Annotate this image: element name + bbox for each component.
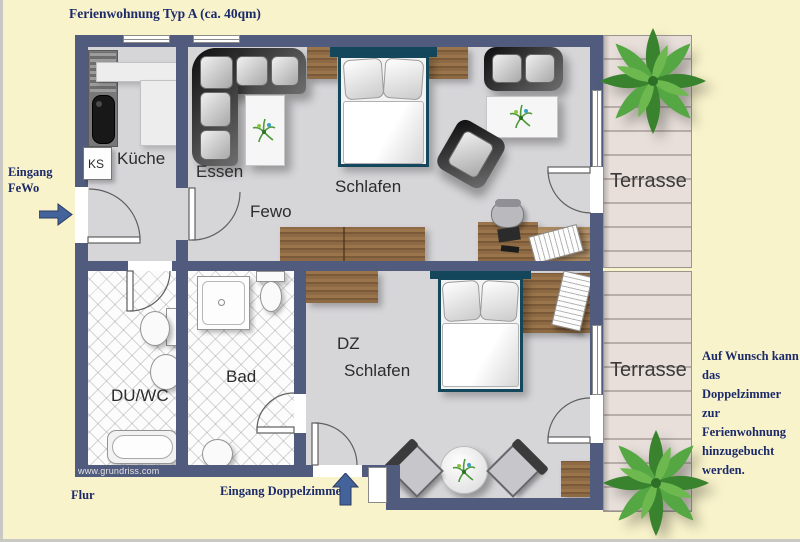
kitchen-sink-icon (92, 95, 115, 144)
note-line: zur Ferienwohnung (702, 404, 800, 442)
note-line: werden. (702, 461, 800, 480)
palm-plant-top-icon (594, 22, 712, 140)
sofa-cushion (200, 130, 231, 160)
double-bed-fewo (330, 45, 437, 167)
flur-label: Flur (71, 488, 95, 503)
double-bed-dz (430, 268, 531, 392)
bathtub (107, 430, 178, 464)
desk-chair-back (495, 199, 521, 207)
shower-icon (197, 276, 250, 330)
toilet-bowl (140, 311, 170, 346)
door-leaf-dz-step (368, 467, 387, 503)
room-label-bad: Bad (226, 367, 256, 387)
fridge-box: KS (83, 147, 112, 180)
note-line: hinzugebucht (702, 442, 800, 461)
window-kueche (123, 35, 170, 43)
note-line: das Doppelzimmer (702, 366, 800, 404)
entrance-fewo-line2: FeWo (8, 180, 52, 196)
window-essen (193, 35, 240, 43)
page-left-edge (0, 0, 3, 542)
table-plant-icon (451, 458, 477, 484)
room-label-dz: DZ (337, 334, 360, 354)
sofa-cushion (492, 54, 522, 83)
sideboard-fewo (280, 227, 425, 261)
table-plant-icon (508, 104, 534, 130)
booking-note: Auf Wunsch kann das Doppelzimmer zur Fer… (702, 347, 800, 480)
sofa-cushion (271, 56, 299, 86)
room-label-terrasse-bottom: Terrasse (610, 359, 687, 382)
table-plant-icon (251, 118, 277, 144)
armchair-cushion (446, 129, 495, 180)
door-opening-duwc (128, 261, 172, 271)
toilet-duwc (140, 306, 180, 350)
kitchen-l-counter-side (140, 80, 178, 146)
entrance-fewo-label: Eingang FeWo (8, 164, 52, 196)
sofa-cushion (200, 92, 231, 127)
entrance-fewo-arrow-icon (39, 201, 73, 228)
room-label-essen: Essen (196, 162, 243, 182)
doormat-dz (561, 461, 593, 497)
outer-wall-bottom-dz (396, 498, 603, 510)
sofa-cushion (200, 56, 233, 89)
page-title: Ferienwohnung Typ A (ca. 40qm) (69, 6, 261, 22)
entrance-fewo-line1: Eingang (8, 164, 52, 180)
floorplan-page: Ferienwohnung Typ A (ca. 40qm) KS (0, 0, 800, 542)
bed-duvet (343, 101, 424, 164)
toilet-bad (256, 271, 286, 315)
shower-drain (218, 299, 225, 306)
palm-plant-bottom-icon (597, 424, 715, 542)
outer-wall-left (75, 35, 88, 477)
entrance-doppelzimmer-arrow-icon (332, 473, 359, 506)
fridge-label: KS (88, 157, 104, 171)
room-label-duwc: DU/WC (111, 386, 169, 406)
bed-pillow (442, 280, 482, 322)
sideboard-dz-left (306, 271, 378, 303)
window-dz-right (592, 325, 602, 395)
sofa-cushion (236, 56, 268, 86)
kitchen-l-counter-top (96, 62, 178, 82)
bed-pillow (343, 58, 385, 101)
bed-pillow (383, 58, 425, 101)
bed-duvet (442, 323, 519, 387)
room-label-dz-schlafen: Schlafen (344, 361, 410, 381)
room-label-fewo: Fewo (250, 202, 292, 222)
note-line: Auf Wunsch kann (702, 347, 800, 366)
bathtub-inner (112, 435, 173, 459)
room-label-schlafen-fewo: Schlafen (335, 177, 401, 197)
room-label-terrasse-top: Terrasse (610, 170, 687, 193)
watermark: www.grundriss.com (78, 466, 159, 476)
two-seat-sofa (484, 47, 563, 91)
sofa-cushion (525, 54, 555, 83)
door-opening-fewo-entry (75, 187, 88, 243)
bed-pillow (480, 280, 520, 322)
wall-duwc-bad (176, 271, 188, 465)
desk-chair (491, 201, 524, 228)
wall-kueche-essen (176, 35, 188, 188)
entrance-doppelzimmer-label: Eingang Doppelzimmer (220, 484, 347, 499)
wall-bad-dz (294, 261, 306, 465)
door-opening-terrace-fewo (590, 167, 603, 213)
sideboard-seam (343, 227, 345, 261)
toilet-bowl (260, 281, 282, 312)
faucet-icon (96, 101, 102, 107)
room-label-kueche: Küche (117, 149, 165, 169)
door-opening-bad (294, 394, 306, 433)
